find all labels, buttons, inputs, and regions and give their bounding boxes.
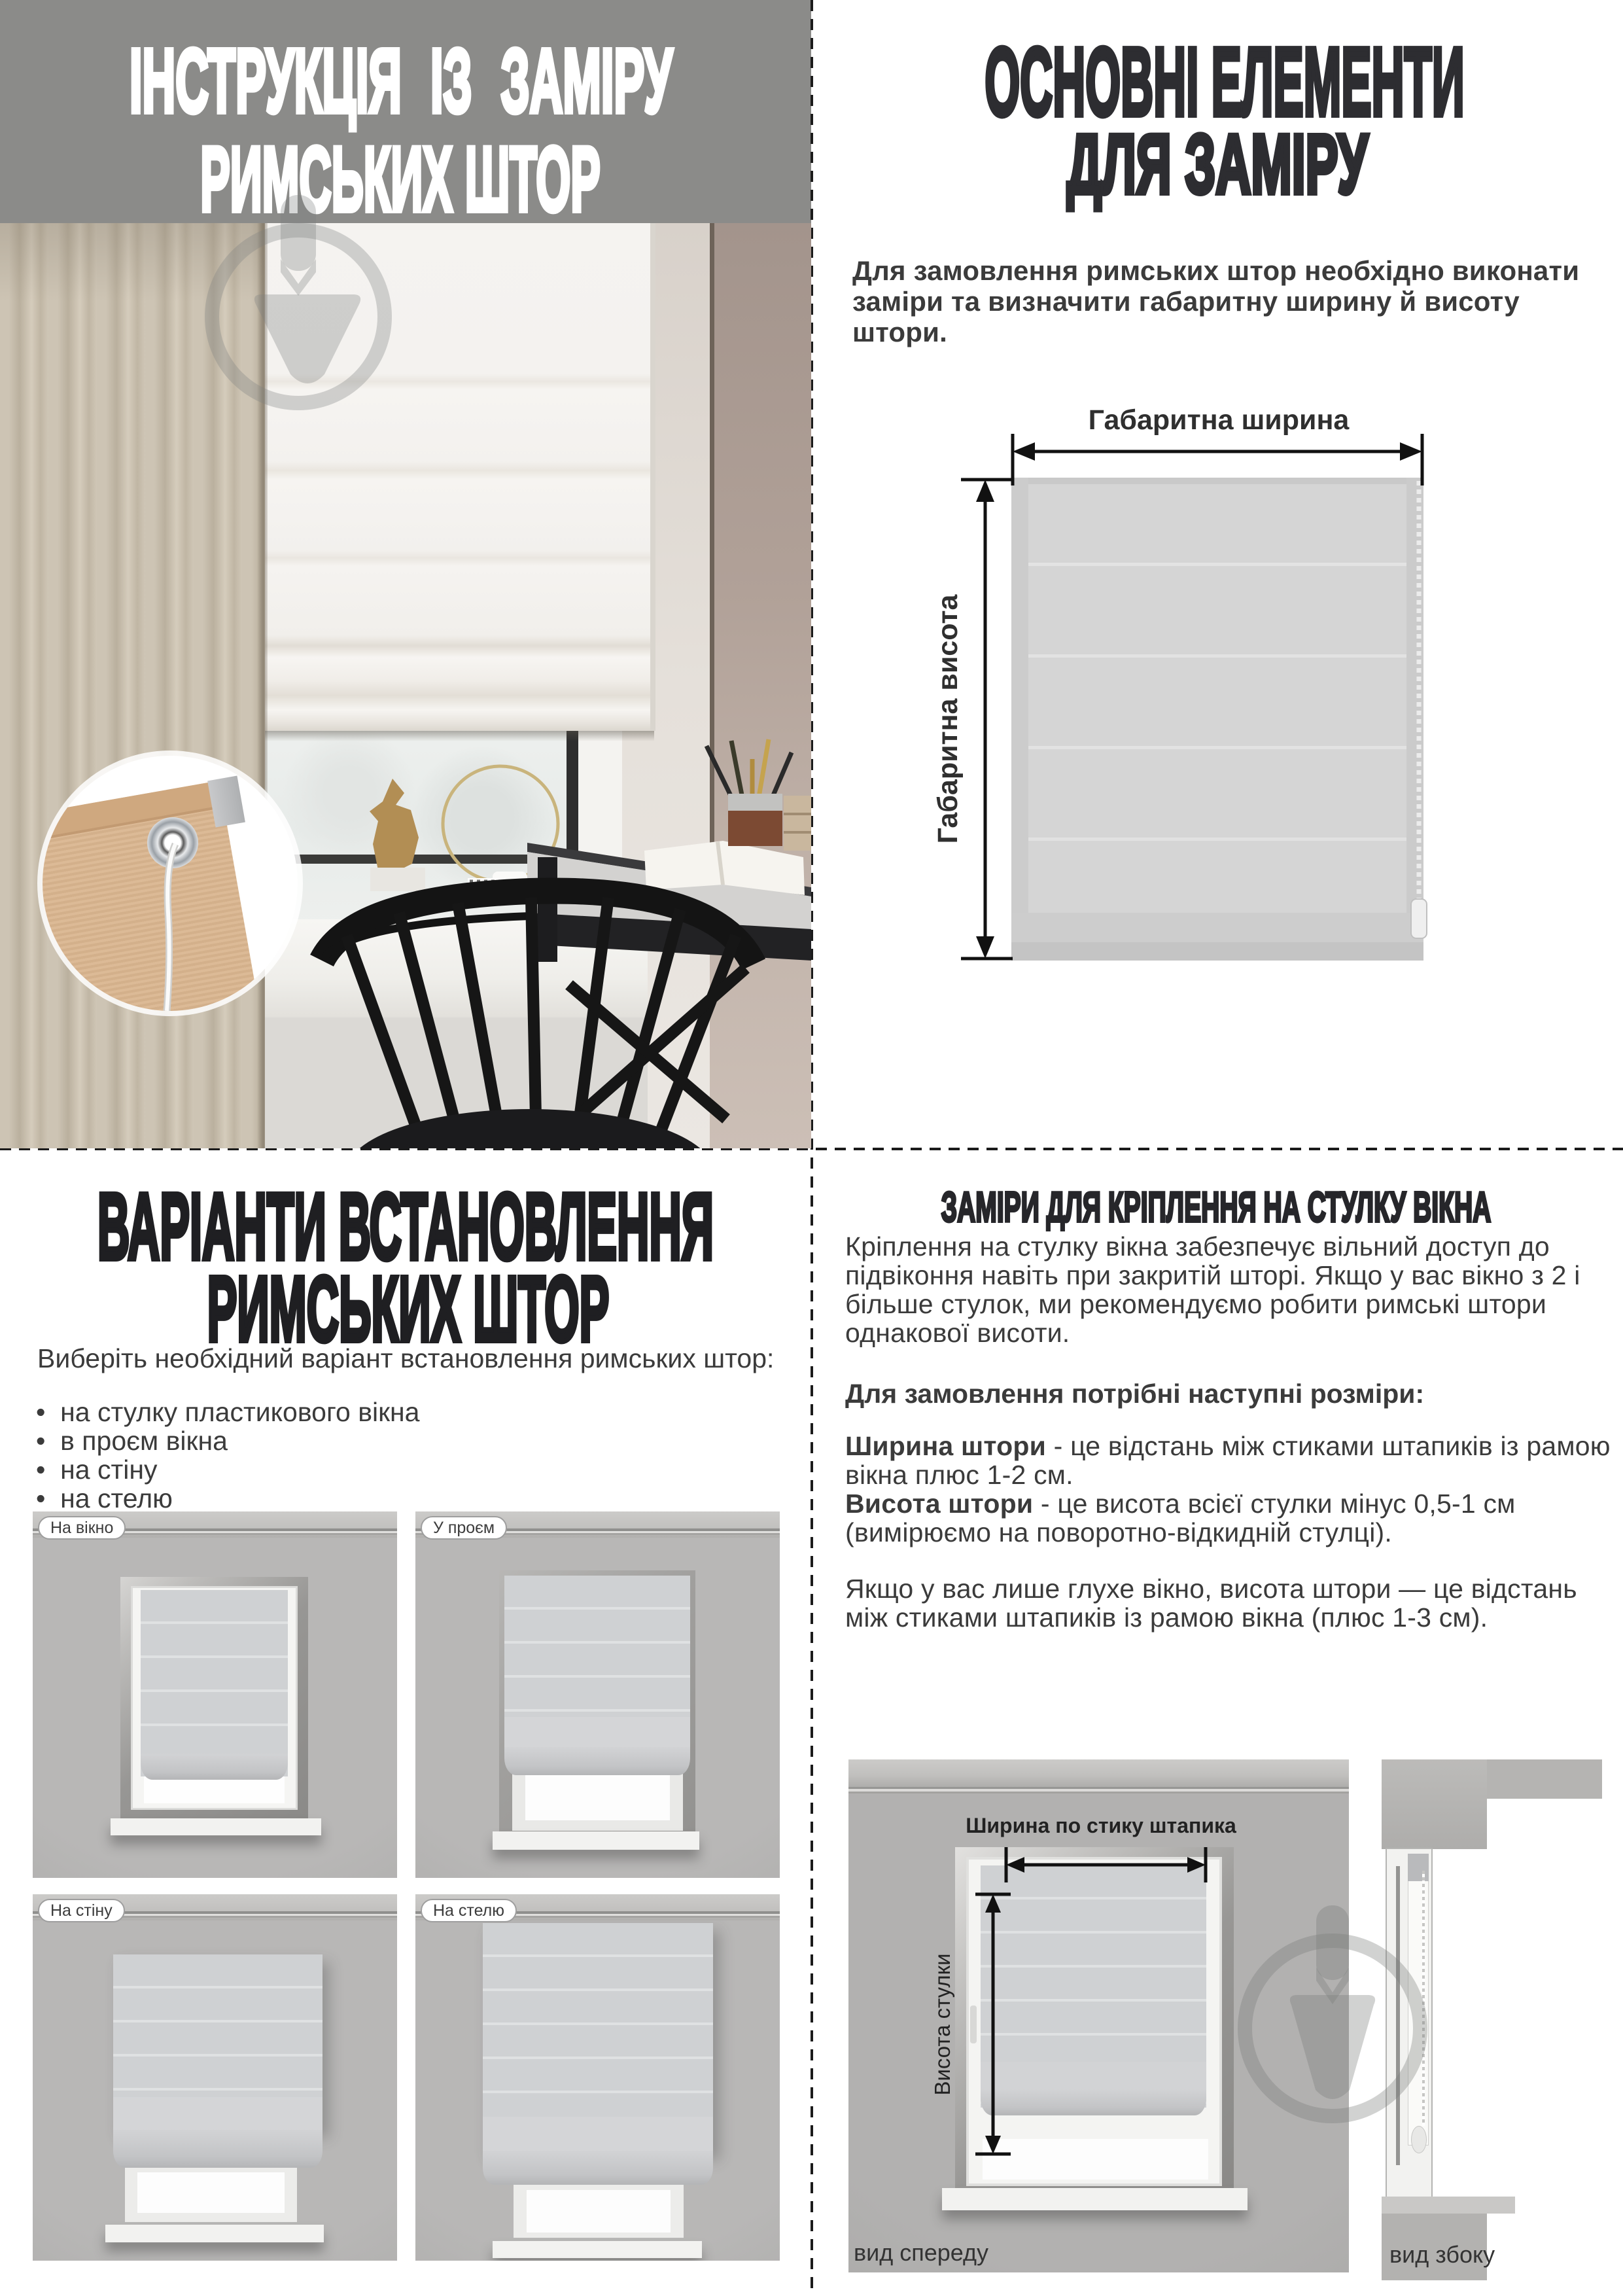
svg-text:Габаритна висота: Габаритна висота [932, 594, 964, 844]
